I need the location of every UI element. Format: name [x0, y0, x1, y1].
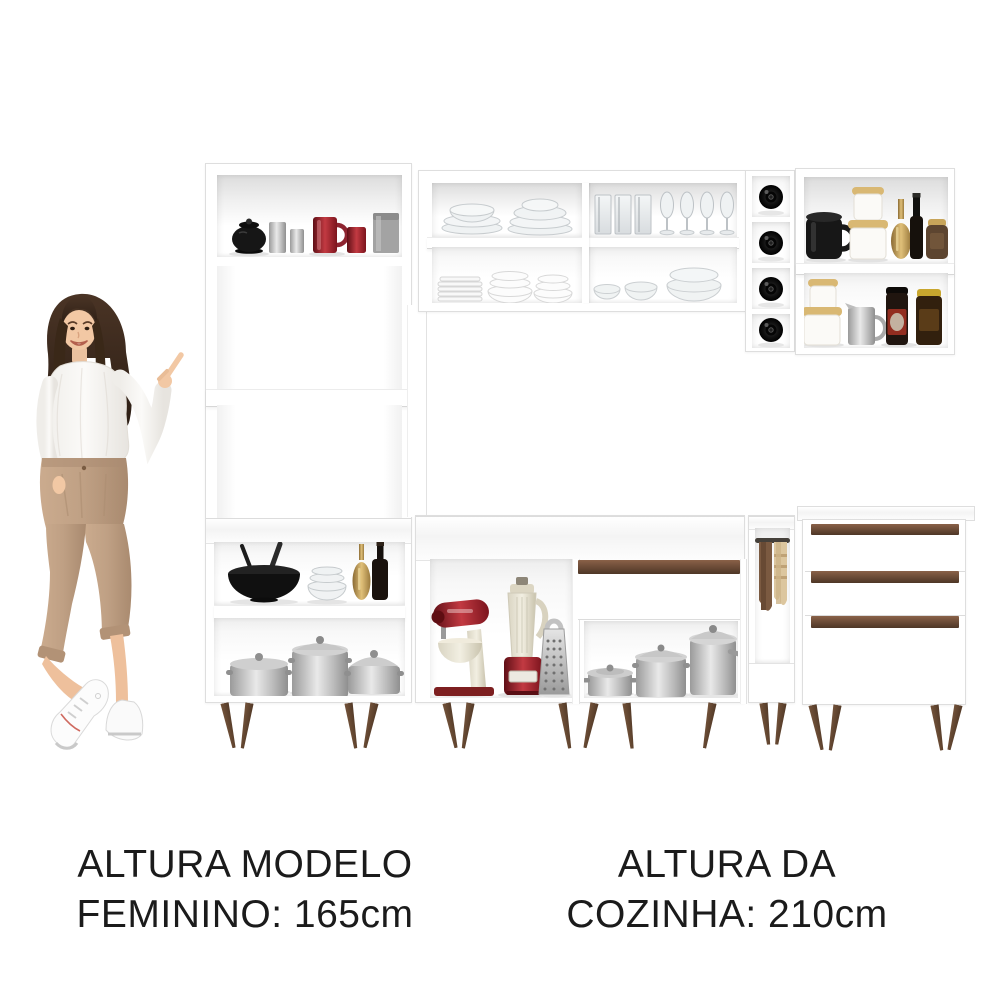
serving-bowls-and-bottles: [214, 542, 405, 605]
wood-leg: [359, 702, 381, 750]
wood-leg: [440, 702, 462, 750]
tall-cabinet-left: [205, 163, 412, 703]
door-front: [805, 628, 965, 702]
wine-cubby: [752, 222, 790, 263]
stand-mixer: [432, 598, 495, 696]
bamboo-canisters: [848, 187, 888, 259]
towel-unit-front: [749, 663, 794, 699]
brown-jar: [926, 219, 948, 259]
wine-bottle: [752, 314, 790, 348]
wine-bottle-standing: [372, 542, 388, 600]
drawer-trim-handle: [811, 524, 959, 535]
drawer-front: [578, 574, 740, 620]
pots-compartment: [584, 621, 738, 698]
model-sweater: [41, 362, 163, 474]
compartment-glass-bowls: [589, 247, 737, 303]
pantry-items-lower: [804, 275, 948, 348]
drawer-trim-handle: [578, 560, 740, 574]
box-grater: [539, 621, 569, 694]
caption-kitchen-height-line1: ALTURA DA: [552, 840, 902, 890]
appliances: [430, 559, 572, 698]
mugs-and-canister: [217, 175, 402, 257]
product-image-kitchen-set: ALTURA MODELO FEMININO: 165cm ALTURA DA …: [0, 0, 1000, 1000]
base-shelf-lower: [214, 618, 405, 696]
tumblers-and-flutes: [589, 183, 737, 237]
towel-rail-unit: [748, 515, 795, 703]
wood-leg: [770, 702, 789, 745]
gold-carafe: [353, 544, 371, 600]
amber-jar: [916, 289, 942, 345]
pantry-items-upper: [804, 179, 948, 263]
wine-cubby: [752, 176, 790, 217]
wine-cubby: [752, 314, 790, 348]
drawer-cabinet-right: [802, 519, 966, 705]
compartment-glass-dishes: [432, 183, 582, 237]
wood-leg: [218, 702, 240, 750]
open-niche-lower: [217, 405, 402, 518]
glass-bowls: [589, 247, 737, 303]
wood-leg: [556, 702, 576, 749]
model-pointing-hand: [158, 355, 181, 388]
blender: [504, 577, 545, 695]
appliance-compartment: [430, 559, 572, 698]
caption-model-height-line2: FEMININO: 165cm: [60, 890, 430, 940]
aluminum-pots-left: [214, 620, 405, 696]
compartment-white-dishes: [432, 247, 582, 303]
top-cubby: [217, 175, 402, 257]
model-pocket-hand: [53, 476, 66, 494]
champagne-flutes: [660, 192, 734, 235]
wine-cubby: [752, 268, 790, 309]
base-cabinet-middle: [415, 515, 745, 703]
aluminum-pots-middle: [584, 621, 738, 698]
wood-leg: [698, 702, 719, 750]
drawer-front-2: [805, 583, 965, 616]
base-shelf-upper: [214, 542, 405, 605]
wood-leg: [236, 702, 256, 749]
wood-leg: [824, 704, 844, 751]
drawer-front-1: [805, 535, 965, 572]
caption-model-height-line1: ALTURA MODELO: [60, 840, 430, 890]
wood-leg: [943, 704, 965, 752]
dish-towels: [755, 538, 790, 658]
wall-cabinet-right: [795, 168, 955, 355]
gold-carafe: [891, 199, 911, 259]
black-pitcher: [806, 212, 853, 259]
caption-model-height: ALTURA MODELO FEMININO: 165cm: [60, 840, 430, 940]
wine-bottle: [752, 222, 790, 263]
glass-dinnerware: [432, 183, 582, 237]
wood-leg: [806, 704, 828, 752]
wood-leg: [757, 702, 775, 745]
red-mugs: [313, 217, 366, 253]
countertop: [416, 516, 744, 561]
pantry-shelf-lower: [804, 273, 948, 348]
female-model-photo: [22, 282, 202, 767]
pot-medium: [632, 645, 690, 698]
black-teapot: [232, 219, 266, 254]
wood-leg: [457, 702, 477, 749]
wood-leg: [342, 702, 362, 749]
wall-cabinet-middle: [418, 170, 748, 312]
wood-leg: [579, 702, 601, 750]
bamboo-canisters: [804, 279, 842, 345]
pantry-shelf-upper: [804, 177, 948, 263]
caption-kitchen-height-line2: COZINHA: 210cm: [552, 890, 902, 940]
casserole-with-lid: [344, 650, 404, 694]
black-salad-bowl: [228, 544, 300, 603]
gray-canister: [373, 213, 399, 253]
wood-leg: [620, 702, 639, 749]
caption-kitchen-height: ALTURA DA COZINHA: 210cm: [552, 840, 902, 940]
silver-mugs: [269, 222, 304, 253]
wall-cabinet-divider: [582, 183, 589, 303]
wine-bottle: [752, 176, 790, 217]
model-trousers: [37, 458, 132, 663]
towel-slot: [755, 528, 790, 663]
drawer-trim-handle: [811, 571, 959, 583]
open-niche-upper: [217, 266, 402, 389]
stockpot-large: [689, 625, 738, 695]
wine-bottle: [752, 268, 790, 309]
white-plates-and-bowls: [432, 247, 582, 303]
pot-tall: [288, 636, 352, 696]
base-right-stile: [740, 559, 747, 704]
coffee-jar: [886, 287, 908, 345]
wood-leg: [928, 704, 948, 751]
drawer-trim-handle: [811, 616, 959, 628]
base-top: [206, 518, 411, 544]
hutch-frame-strip: [407, 305, 427, 517]
silver-jug: [845, 303, 885, 345]
casserole-small: [584, 665, 637, 697]
compartment-glasses: [589, 183, 737, 237]
glass-bowl-stack: [308, 567, 346, 600]
wine-rack: [745, 170, 795, 352]
black-bottle: [910, 193, 923, 259]
pot-low: [226, 653, 292, 696]
